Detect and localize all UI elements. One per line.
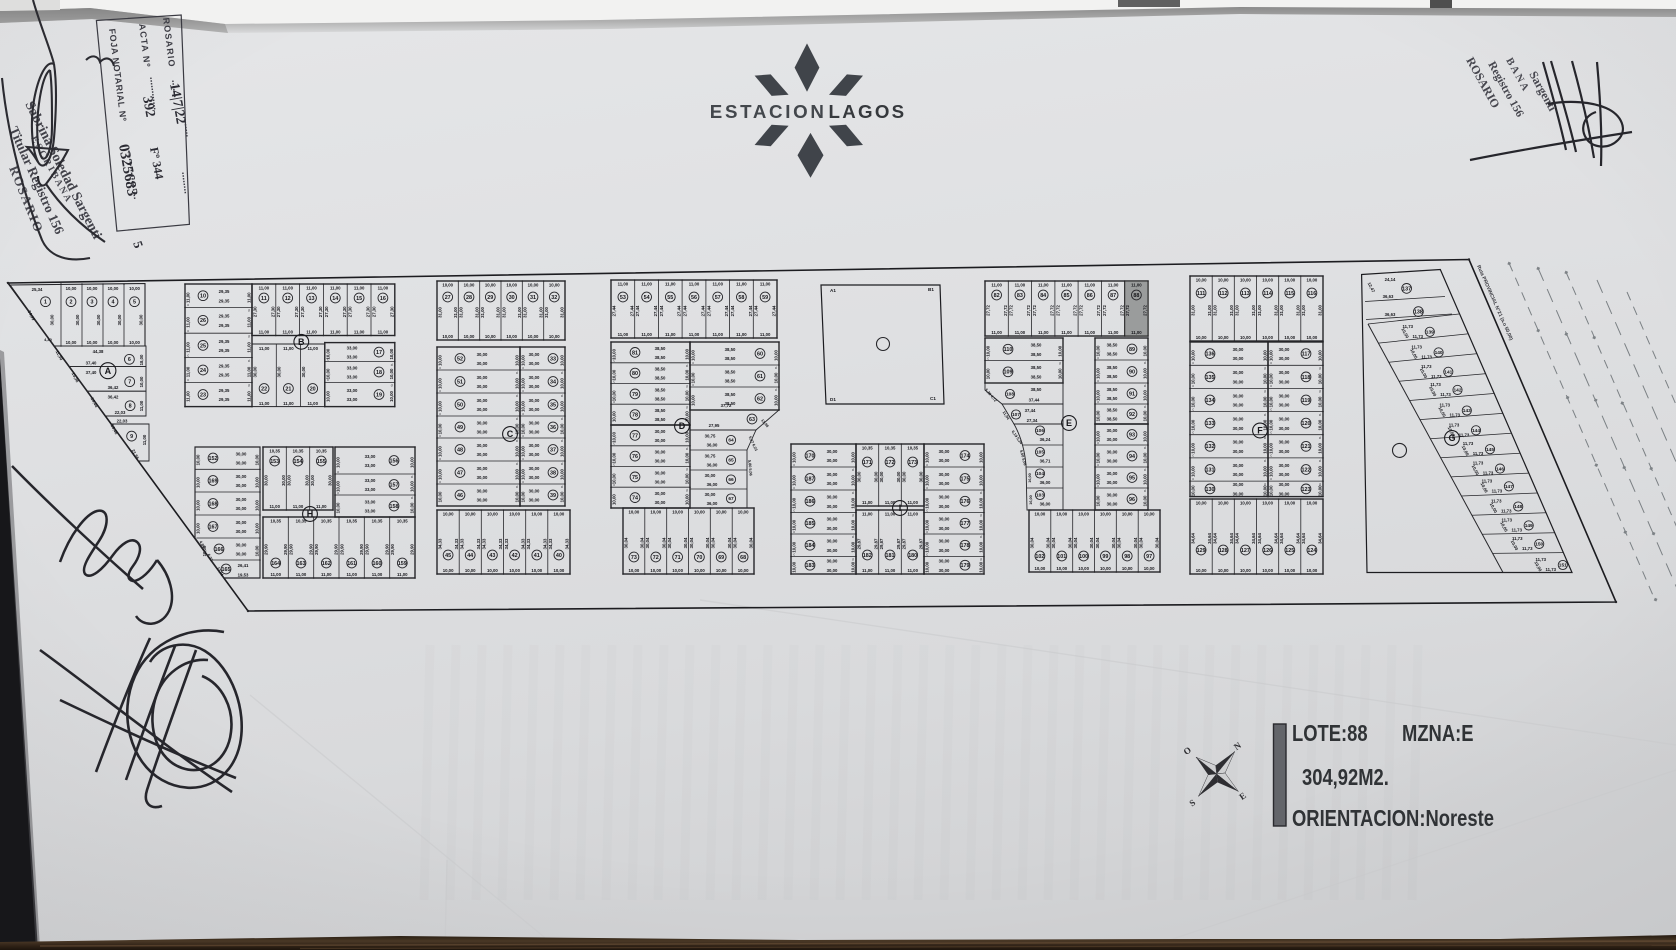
svg-text:10,00: 10,00 — [716, 568, 727, 573]
svg-text:34,33: 34,33 — [498, 538, 503, 549]
svg-text:11,00: 11,00 — [736, 281, 747, 286]
svg-text:10,00: 10,00 — [409, 502, 414, 513]
svg-text:30,04: 30,04 — [623, 537, 628, 548]
svg-text:27,44: 27,44 — [629, 305, 634, 316]
svg-text:11,00: 11,00 — [689, 332, 700, 337]
svg-text:33,00: 33,00 — [347, 388, 358, 393]
svg-text:30,00: 30,00 — [301, 366, 306, 377]
svg-text:10,00: 10,00 — [87, 340, 98, 345]
svg-text:10,00: 10,00 — [1144, 566, 1155, 571]
svg-text:34,64: 34,64 — [1235, 533, 1240, 544]
svg-text:11,00: 11,00 — [618, 281, 629, 286]
svg-text:10,00: 10,00 — [612, 473, 617, 484]
svg-text:11,00: 11,00 — [307, 401, 318, 406]
svg-text:34: 34 — [550, 379, 556, 385]
svg-text:d: d — [980, 491, 982, 495]
svg-text:185: 185 — [806, 521, 815, 527]
svg-text:106: 106 — [1036, 428, 1044, 434]
svg-text:29,90: 29,90 — [390, 544, 395, 555]
svg-text:10,00: 10,00 — [1100, 511, 1111, 516]
svg-text:d: d — [775, 388, 777, 392]
svg-text:11,00: 11,00 — [397, 572, 408, 577]
svg-text:11,00: 11,00 — [907, 568, 918, 573]
svg-text:10,00: 10,00 — [1096, 345, 1101, 356]
svg-text:10,00: 10,00 — [978, 519, 983, 530]
svg-text:110: 110 — [1004, 347, 1013, 353]
svg-text:34,64: 34,64 — [1251, 533, 1256, 544]
svg-text:27,44: 27,44 — [701, 305, 706, 316]
svg-text:10,00: 10,00 — [465, 568, 476, 573]
svg-text:29,35: 29,35 — [219, 298, 230, 303]
svg-text:10,00: 10,00 — [925, 541, 930, 552]
svg-text:29,87: 29,87 — [873, 538, 878, 549]
svg-text:10,00: 10,00 — [925, 561, 930, 572]
svg-text:29,90: 29,90 — [308, 544, 313, 555]
svg-text:10: 10 — [200, 294, 206, 300]
svg-text:30,00: 30,00 — [529, 398, 540, 403]
svg-text:27: 27 — [445, 295, 451, 301]
svg-text:62: 62 — [757, 396, 763, 402]
svg-text:34,64: 34,64 — [1207, 533, 1212, 544]
svg-text:148: 148 — [1514, 504, 1522, 510]
svg-text:C1: C1 — [930, 396, 936, 401]
svg-text:38,50: 38,50 — [725, 379, 736, 384]
svg-text:E: E — [1066, 418, 1072, 428]
svg-text:30,00: 30,00 — [705, 473, 716, 478]
svg-text:65: 65 — [728, 458, 734, 464]
svg-text:150: 150 — [1535, 542, 1543, 548]
svg-text:30,00: 30,00 — [1233, 356, 1244, 361]
svg-text:8: 8 — [129, 404, 132, 410]
svg-text:d: d — [561, 462, 563, 466]
svg-text:30,00: 30,00 — [117, 314, 122, 325]
svg-text:116: 116 — [1308, 291, 1317, 297]
svg-text:168: 168 — [209, 501, 218, 507]
svg-text:10,00: 10,00 — [684, 369, 689, 380]
svg-text:10,00: 10,00 — [325, 391, 330, 402]
svg-text:85: 85 — [1064, 293, 1070, 299]
svg-text:27,72: 27,72 — [1079, 305, 1084, 316]
svg-text:27,44: 27,44 — [635, 305, 640, 316]
svg-text:d: d — [686, 385, 688, 389]
svg-text:30,04: 30,04 — [1067, 537, 1072, 548]
svg-text:27,44: 27,44 — [772, 305, 777, 316]
svg-text:36,00: 36,00 — [1040, 501, 1051, 506]
svg-text:11,00: 11,00 — [1085, 330, 1096, 335]
svg-text:31,00: 31,00 — [1301, 305, 1306, 316]
svg-text:29: 29 — [487, 295, 493, 301]
svg-text:10,00: 10,00 — [1240, 277, 1251, 282]
svg-text:10,00: 10,00 — [612, 452, 617, 463]
svg-text:30,00: 30,00 — [529, 430, 540, 435]
svg-text:29,35: 29,35 — [219, 373, 230, 378]
svg-text:11,00: 11,00 — [1015, 282, 1026, 287]
svg-text:30,00: 30,00 — [529, 420, 540, 425]
svg-text:27,30: 27,30 — [342, 306, 347, 317]
svg-text:30,00: 30,00 — [939, 472, 950, 477]
svg-text:15: 15 — [356, 296, 362, 302]
svg-text:30,00: 30,00 — [1279, 440, 1290, 445]
svg-text:35: 35 — [550, 402, 556, 408]
svg-text:d: d — [516, 439, 518, 443]
svg-text:d: d — [1144, 468, 1146, 472]
svg-text:10,00: 10,00 — [1218, 335, 1229, 340]
svg-text:37: 37 — [550, 447, 556, 453]
svg-text:10,00: 10,00 — [438, 401, 443, 412]
svg-text:10,00: 10,00 — [792, 497, 797, 508]
svg-text:36,71: 36,71 — [1040, 458, 1051, 463]
svg-text:30,00: 30,00 — [287, 475, 292, 486]
svg-text:30,00: 30,00 — [477, 488, 488, 493]
svg-text:11,73: 11,73 — [1511, 527, 1522, 532]
svg-text:10,00: 10,00 — [978, 561, 983, 572]
svg-text:10,00: 10,00 — [1307, 335, 1318, 340]
svg-text:27,72: 27,72 — [1125, 305, 1130, 316]
svg-text:10,00: 10,00 — [254, 454, 259, 465]
svg-text:30,00: 30,00 — [1279, 492, 1290, 497]
svg-text:31,00: 31,00 — [1229, 305, 1234, 316]
svg-text:30,00: 30,00 — [236, 483, 247, 488]
svg-text:99: 99 — [1102, 554, 1108, 560]
svg-text:ESTACION: ESTACION — [710, 101, 827, 122]
svg-text:10,00: 10,00 — [978, 497, 983, 508]
svg-text:10,00: 10,00 — [792, 561, 797, 572]
svg-text:38,50: 38,50 — [1031, 352, 1042, 357]
svg-text:10,00: 10,00 — [1284, 335, 1295, 340]
svg-text:36: 36 — [550, 425, 556, 431]
svg-text:10,00: 10,00 — [254, 477, 259, 488]
svg-text:144: 144 — [1472, 428, 1480, 434]
svg-text:88: 88 — [1133, 293, 1139, 299]
svg-text:d: d — [391, 363, 393, 367]
svg-text:33,00: 33,00 — [347, 397, 358, 402]
svg-text:179: 179 — [961, 563, 970, 569]
svg-text:10,00: 10,00 — [521, 423, 526, 434]
svg-text:10,00: 10,00 — [1035, 511, 1046, 516]
svg-text:10,00: 10,00 — [1269, 442, 1274, 453]
svg-text:36,42: 36,42 — [108, 385, 119, 390]
svg-text:29,35: 29,35 — [219, 289, 230, 294]
svg-text:30,00: 30,00 — [827, 548, 838, 553]
svg-text:10,00: 10,00 — [514, 491, 519, 502]
svg-text:31: 31 — [530, 295, 536, 301]
svg-text:11,00: 11,00 — [372, 572, 383, 577]
svg-text:36,00: 36,00 — [707, 443, 718, 448]
svg-text:10,00: 10,00 — [514, 378, 519, 389]
svg-text:30,00: 30,00 — [1233, 403, 1244, 408]
svg-text:10,00: 10,00 — [87, 286, 98, 291]
svg-text:31,00: 31,00 — [538, 307, 543, 318]
svg-text:11,00: 11,00 — [1131, 330, 1142, 335]
svg-text:10,00: 10,00 — [521, 355, 526, 366]
svg-text:174: 174 — [961, 453, 970, 459]
svg-text:33,00: 33,00 — [365, 478, 376, 483]
svg-text:10,00: 10,00 — [1262, 466, 1267, 477]
svg-text:d: d — [1264, 459, 1266, 463]
svg-text:24: 24 — [200, 368, 206, 374]
svg-text:10,00: 10,00 — [691, 350, 696, 361]
svg-text:d: d — [248, 334, 250, 338]
svg-text:10,00: 10,00 — [336, 457, 341, 468]
svg-text:d: d — [1264, 413, 1266, 417]
svg-text:11,00: 11,00 — [306, 285, 317, 290]
svg-text:10,35: 10,35 — [293, 448, 304, 453]
svg-text:30,00: 30,00 — [1279, 417, 1290, 422]
svg-text:27,30: 27,30 — [294, 306, 299, 317]
svg-text:d: d — [1264, 367, 1266, 371]
svg-text:d: d — [852, 558, 854, 562]
svg-text:10,00: 10,00 — [1035, 566, 1046, 571]
svg-text:d: d — [1144, 489, 1146, 493]
svg-text:27,72: 27,72 — [1143, 305, 1148, 316]
svg-text:56: 56 — [691, 295, 697, 301]
svg-text:10,35: 10,35 — [907, 445, 918, 450]
svg-text:30,04: 30,04 — [727, 537, 732, 548]
svg-text:B: B — [298, 337, 305, 347]
svg-text:38,50: 38,50 — [655, 417, 666, 422]
svg-text:10,00: 10,00 — [1122, 511, 1133, 516]
svg-text:27,44: 27,44 — [653, 305, 658, 316]
svg-text:77: 77 — [632, 433, 638, 439]
svg-text:10,35: 10,35 — [269, 448, 280, 453]
svg-text:30,00: 30,00 — [252, 366, 257, 377]
svg-text:30,00: 30,00 — [827, 458, 838, 463]
svg-text:131: 131 — [1206, 467, 1215, 473]
svg-text:11,00: 11,00 — [246, 292, 251, 303]
svg-text:49: 49 — [457, 425, 463, 431]
svg-text:98: 98 — [1124, 554, 1130, 560]
svg-text:152: 152 — [209, 456, 218, 462]
svg-text:11,00: 11,00 — [354, 330, 365, 335]
svg-text:61: 61 — [757, 374, 763, 380]
svg-text:10,00: 10,00 — [691, 395, 696, 406]
svg-text:d: d — [686, 405, 688, 409]
svg-text:10,00: 10,00 — [438, 491, 443, 502]
svg-text:31,00: 31,00 — [517, 307, 522, 318]
svg-text:30,00: 30,00 — [1233, 417, 1244, 422]
svg-text:11,00: 11,00 — [1108, 282, 1119, 287]
svg-text:11,00: 11,00 — [862, 568, 873, 573]
svg-text:83: 83 — [1017, 293, 1023, 299]
svg-text:30,00: 30,00 — [529, 375, 540, 380]
svg-text:30,00: 30,00 — [529, 384, 540, 389]
svg-text:34,33: 34,33 — [476, 538, 481, 549]
svg-text:10,00: 10,00 — [792, 475, 797, 486]
svg-text:37,40: 37,40 — [86, 361, 97, 366]
svg-text:27,44: 27,44 — [677, 305, 682, 316]
svg-text:10,00: 10,00 — [438, 469, 443, 480]
svg-text:10,00: 10,00 — [485, 334, 496, 339]
svg-text:44: 44 — [467, 553, 473, 559]
svg-text:10,35: 10,35 — [885, 445, 896, 450]
svg-text:26,41: 26,41 — [238, 563, 249, 568]
svg-text:183: 183 — [806, 563, 815, 569]
svg-text:36,63: 36,63 — [1385, 312, 1396, 317]
svg-text:43: 43 — [489, 553, 495, 559]
svg-text:11,73: 11,73 — [1492, 488, 1503, 493]
svg-text:10,00: 10,00 — [559, 446, 564, 457]
svg-text:d: d — [516, 394, 518, 398]
svg-text:10,00: 10,00 — [521, 401, 526, 412]
svg-text:30,00: 30,00 — [1233, 482, 1244, 487]
svg-text:92: 92 — [1129, 412, 1135, 418]
svg-text:11,00: 11,00 — [1038, 330, 1049, 335]
svg-text:52: 52 — [457, 356, 463, 362]
svg-text:4,30: 4,30 — [44, 337, 53, 342]
svg-text:27,72: 27,72 — [1055, 305, 1060, 316]
svg-text:37,72: 37,72 — [721, 403, 732, 408]
svg-text:30,00: 30,00 — [827, 481, 838, 486]
svg-text:30,04: 30,04 — [1133, 537, 1138, 548]
svg-text:10,00: 10,00 — [509, 511, 520, 516]
svg-text:30,00: 30,00 — [655, 491, 666, 496]
svg-text:112: 112 — [1219, 291, 1228, 297]
svg-text:10,00: 10,00 — [850, 497, 855, 508]
svg-text:30,00: 30,00 — [655, 459, 666, 464]
svg-text:70: 70 — [696, 555, 702, 561]
svg-text:10,35: 10,35 — [397, 518, 408, 523]
svg-text:181: 181 — [886, 553, 895, 559]
svg-text:10,00: 10,00 — [485, 282, 496, 287]
svg-text:11,00: 11,00 — [186, 342, 191, 353]
svg-text:10,00: 10,00 — [1122, 566, 1133, 571]
svg-text:27,72: 27,72 — [985, 305, 990, 316]
svg-text:d: d — [980, 514, 982, 518]
svg-text:38,50: 38,50 — [725, 369, 736, 374]
svg-text:130: 130 — [1206, 487, 1215, 493]
svg-text:d: d — [686, 488, 688, 492]
svg-text:d: d — [516, 417, 518, 421]
svg-text:30,00: 30,00 — [529, 488, 540, 493]
svg-text:69: 69 — [718, 555, 724, 561]
svg-text:10,00: 10,00 — [684, 494, 689, 505]
svg-text:22,03: 22,03 — [117, 419, 128, 424]
svg-text:30,04: 30,04 — [683, 537, 688, 548]
svg-text:30,04: 30,04 — [667, 537, 672, 548]
svg-text:11,00: 11,00 — [259, 346, 270, 351]
svg-text:31,00: 31,00 — [480, 307, 485, 318]
svg-text:31,00: 31,00 — [1235, 305, 1240, 316]
svg-text:10,00: 10,00 — [464, 282, 475, 287]
svg-text:29,35: 29,35 — [219, 314, 230, 319]
svg-text:29,90: 29,90 — [339, 544, 344, 555]
svg-text:44,38: 44,38 — [93, 349, 104, 354]
svg-text:151: 151 — [1559, 563, 1567, 569]
svg-text:10,00: 10,00 — [1144, 511, 1155, 516]
svg-text:10,00: 10,00 — [684, 390, 689, 401]
svg-text:180: 180 — [908, 553, 917, 559]
svg-text:10,00: 10,00 — [612, 348, 617, 359]
svg-text:11,00: 11,00 — [282, 285, 293, 290]
svg-text:27,44: 27,44 — [730, 305, 735, 316]
svg-text:34,64: 34,64 — [1318, 533, 1323, 544]
svg-text:139: 139 — [1426, 330, 1434, 336]
svg-text:10,00: 10,00 — [1284, 277, 1295, 282]
svg-text:30,00: 30,00 — [281, 475, 286, 486]
svg-text:30,04: 30,04 — [1139, 537, 1144, 548]
svg-text:30,00: 30,00 — [277, 366, 282, 377]
svg-text:d: d — [1319, 367, 1321, 371]
svg-text:10,00: 10,00 — [254, 545, 259, 556]
svg-text:LAGOS: LAGOS — [829, 101, 907, 122]
svg-text:176: 176 — [961, 499, 970, 505]
svg-text:30,00: 30,00 — [477, 384, 488, 389]
svg-text:C: C — [507, 429, 514, 439]
svg-text:10,00: 10,00 — [1096, 410, 1101, 421]
svg-text:24,14: 24,14 — [1385, 277, 1396, 282]
svg-text:27,44: 27,44 — [683, 305, 688, 316]
svg-text:3: 3 — [91, 300, 94, 306]
svg-text:119: 119 — [1302, 398, 1311, 404]
svg-text:34,64: 34,64 — [1229, 533, 1234, 544]
svg-text:33,00: 33,00 — [347, 375, 358, 380]
svg-text:d: d — [852, 491, 854, 495]
svg-text:10,00: 10,00 — [738, 509, 749, 514]
svg-text:10,00: 10,00 — [129, 286, 140, 291]
svg-text:38,50: 38,50 — [655, 355, 666, 360]
svg-text:30,04: 30,04 — [749, 537, 754, 548]
svg-text:34,64: 34,64 — [1279, 533, 1284, 544]
svg-text:76: 76 — [632, 454, 638, 460]
svg-text:53: 53 — [620, 295, 626, 301]
svg-text:37,44: 37,44 — [1029, 398, 1040, 403]
svg-text:11,73: 11,73 — [1459, 432, 1470, 437]
svg-text:11,00: 11,00 — [1131, 282, 1142, 287]
svg-text:31,00: 31,00 — [1318, 305, 1323, 316]
svg-text:10,00: 10,00 — [1096, 368, 1101, 379]
svg-text:73: 73 — [631, 555, 637, 561]
svg-text:10,00: 10,00 — [1191, 373, 1196, 384]
svg-text:30,00: 30,00 — [827, 568, 838, 573]
svg-text:10,00: 10,00 — [506, 334, 517, 339]
svg-text:10,00: 10,00 — [1057, 345, 1062, 356]
svg-text:10,00: 10,00 — [925, 497, 930, 508]
svg-text:12: 12 — [285, 296, 291, 302]
svg-text:30,00: 30,00 — [529, 452, 540, 457]
svg-text:10,00: 10,00 — [684, 473, 689, 484]
svg-text:186: 186 — [806, 499, 815, 505]
svg-text:10,00: 10,00 — [438, 423, 443, 434]
svg-text:30,00: 30,00 — [477, 352, 488, 357]
svg-text:34,33: 34,33 — [542, 538, 547, 549]
svg-text:10,00: 10,00 — [1218, 500, 1229, 505]
svg-text:30,00: 30,00 — [236, 506, 247, 511]
svg-text:10,00: 10,00 — [629, 568, 640, 573]
svg-text:30,00: 30,00 — [827, 504, 838, 509]
svg-text:30,00: 30,00 — [529, 466, 540, 471]
svg-text:10,00: 10,00 — [1191, 419, 1196, 430]
svg-text:10,00: 10,00 — [672, 509, 683, 514]
svg-text:34,33: 34,33 — [504, 538, 509, 549]
svg-text:10,00: 10,00 — [514, 355, 519, 366]
svg-text:10,00: 10,00 — [1142, 474, 1147, 485]
svg-text:10,35: 10,35 — [862, 445, 873, 450]
svg-text:10,00: 10,00 — [464, 334, 475, 339]
svg-text:29,35: 29,35 — [219, 348, 230, 353]
svg-text:115: 115 — [1285, 291, 1294, 297]
svg-text:30,00: 30,00 — [1279, 472, 1290, 477]
svg-text:10,00: 10,00 — [514, 469, 519, 480]
svg-text:30,00: 30,00 — [827, 495, 838, 500]
svg-text:30,00: 30,00 — [873, 471, 878, 482]
svg-text:11,00: 11,00 — [306, 330, 317, 335]
svg-text:29,87: 29,87 — [919, 538, 924, 549]
svg-text:36,42: 36,42 — [108, 395, 119, 400]
svg-text:29,87: 29,87 — [879, 538, 884, 549]
svg-text:10,00: 10,00 — [443, 568, 454, 573]
svg-text:30,00: 30,00 — [827, 559, 838, 564]
svg-text:30,00: 30,00 — [50, 314, 55, 325]
